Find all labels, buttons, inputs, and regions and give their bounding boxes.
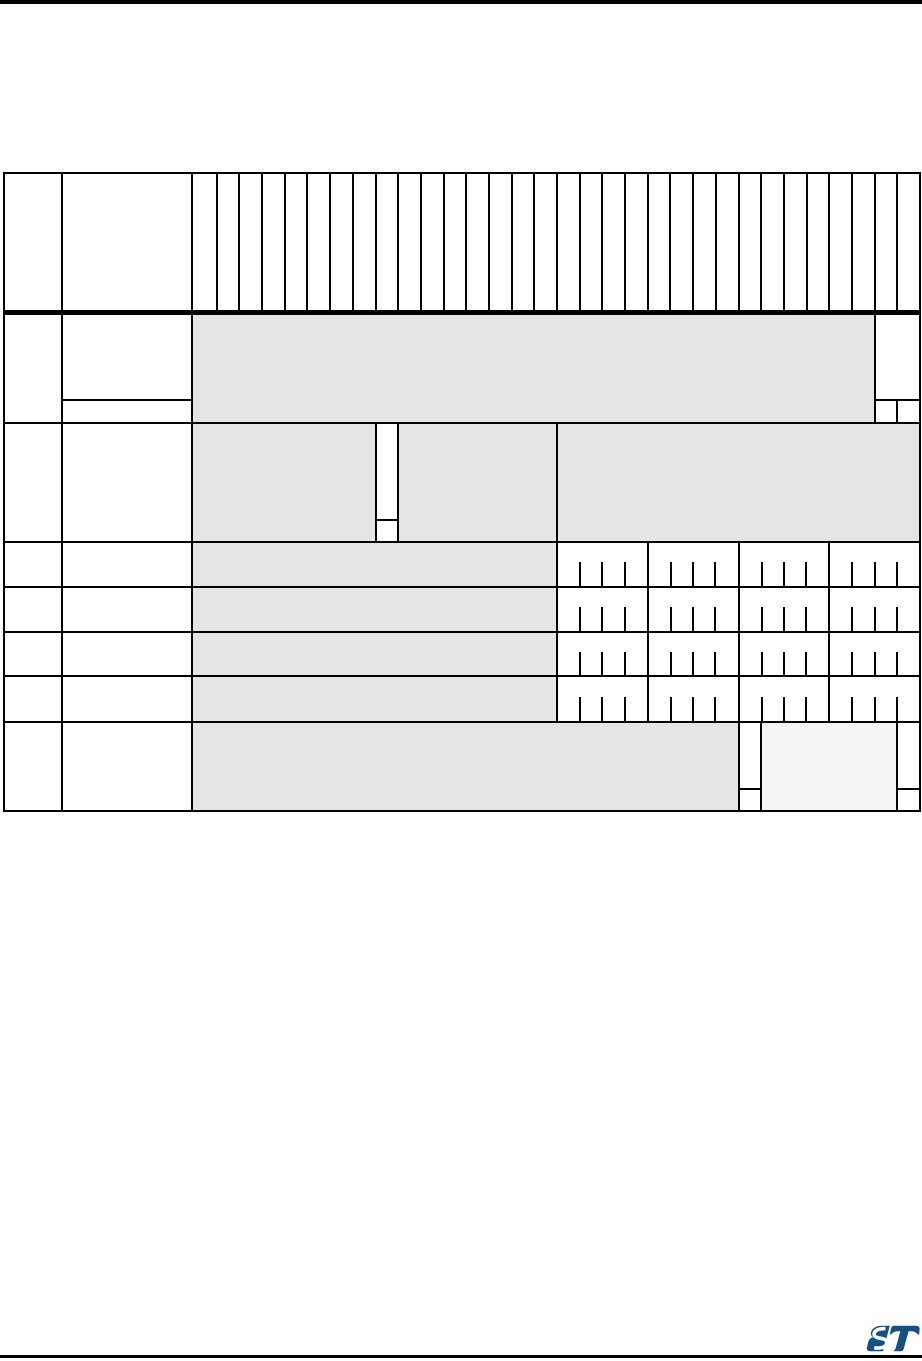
bit-cells [193, 424, 919, 541]
reserved-cell-light [760, 723, 896, 810]
register-name-cell [63, 633, 193, 675]
offset-column-divider [61, 174, 63, 810]
reserved-cell [193, 633, 556, 675]
field-cell [896, 723, 919, 810]
register-name-cell [63, 315, 193, 422]
bit-separator-tick [783, 697, 785, 721]
table-row [5, 588, 919, 633]
header-bit-cell [329, 174, 352, 310]
field-cell [647, 677, 738, 721]
header-bit-cell [851, 174, 874, 310]
header-bit-cell [488, 174, 511, 310]
header-bit-cell [306, 174, 329, 310]
table-row [5, 677, 919, 723]
field-cell [828, 677, 919, 721]
bit-separator-tick [670, 652, 672, 675]
register-column-divider [191, 174, 193, 810]
reset-value-divider [740, 788, 761, 790]
header-bit-cell [715, 174, 738, 310]
reserved-cell [193, 588, 556, 631]
header-bit-cell [647, 174, 670, 310]
reserved-cell [193, 677, 556, 721]
reserved-cell [397, 424, 556, 541]
reset-value-divider [377, 519, 398, 521]
bit-separator-tick [874, 652, 876, 675]
register-name-cell [63, 588, 193, 631]
bit-separator-tick [692, 607, 694, 631]
header-bit-cell [533, 174, 556, 310]
field-cell [828, 633, 919, 675]
field-cell [556, 677, 647, 721]
table-row [5, 543, 919, 588]
field-cell [738, 543, 829, 586]
bit-separator-tick [714, 697, 716, 721]
header-bit-cell [284, 174, 307, 310]
bit-separator-tick [783, 607, 785, 631]
reset-value-divider [898, 788, 919, 790]
header-bit-cell [624, 174, 647, 310]
bit-separator-tick [874, 562, 876, 586]
bit-separator-tick [714, 562, 716, 586]
header-bit-cell [692, 174, 715, 310]
header-bit-cell [556, 174, 579, 310]
table-header-row [5, 174, 919, 310]
bit-separator-tick [692, 652, 694, 675]
header-bit-cell [465, 174, 488, 310]
field-cell [828, 588, 919, 631]
bit-separator-tick [692, 697, 694, 721]
bit-separator-tick [896, 697, 898, 721]
bit-separator-tick [851, 607, 853, 631]
bit-separator-tick [805, 607, 807, 631]
register-name-cell [63, 677, 193, 721]
reserved-cell [193, 315, 874, 422]
reserved-cell [193, 543, 556, 586]
bit-separator-tick [579, 652, 581, 675]
header-bit-cell [806, 174, 829, 310]
field-cell [556, 543, 647, 586]
table-row [5, 315, 919, 424]
bit-separator-tick [579, 697, 581, 721]
bit-separator-tick [805, 652, 807, 675]
register-name-cell [63, 424, 193, 541]
bit-separator-tick [851, 697, 853, 721]
bit-separator-tick [579, 562, 581, 586]
bit-separator-tick [874, 607, 876, 631]
header-bit-cell [760, 174, 783, 310]
table-row [5, 424, 919, 543]
bit-separator-tick [896, 652, 898, 675]
bit-separator-tick [783, 562, 785, 586]
bit-separator-tick [601, 562, 603, 586]
reserved-cell [193, 723, 738, 810]
header-bit-cell [352, 174, 375, 310]
header-bit-cell [261, 174, 284, 310]
field-cell [647, 588, 738, 631]
header-bit-cell [601, 174, 624, 310]
register-map-table [3, 172, 921, 812]
bit-separator-tick [783, 652, 785, 675]
bit-separator-tick [624, 652, 626, 675]
bit-separator-tick [692, 562, 694, 586]
field-cell [647, 633, 738, 675]
bit-cells [193, 315, 919, 422]
bit-separator-tick [601, 652, 603, 675]
bit-separator-tick [714, 652, 716, 675]
bit-cells [193, 588, 919, 631]
field-cell [375, 424, 398, 541]
bit-cells [193, 543, 919, 586]
register-name-cell [63, 543, 193, 586]
bit-separator-tick [761, 562, 763, 586]
bit-separator-tick [874, 697, 876, 721]
header-bit-cell [896, 174, 919, 310]
bit-separator-tick [579, 607, 581, 631]
bit-separator-tick [851, 652, 853, 675]
field-cell [647, 543, 738, 586]
bit-separator-tick [851, 562, 853, 586]
header-bit-cell [193, 174, 216, 310]
bit-separator-tick [896, 562, 898, 586]
header-bit-cell [669, 174, 692, 310]
header-bit-cell [579, 174, 602, 310]
header-bit-columns [193, 174, 919, 310]
bit-separator-tick [896, 607, 898, 631]
footer-rule [0, 1355, 922, 1358]
bit-cells [193, 677, 919, 721]
bit-separator-tick [670, 697, 672, 721]
header-rule [0, 0, 922, 4]
field-cell [556, 588, 647, 631]
bit-separator-tick [601, 607, 603, 631]
bit-cells [193, 633, 919, 675]
bit-separator-tick [761, 607, 763, 631]
bit-separator-tick [714, 607, 716, 631]
header-bit-cell [375, 174, 398, 310]
header-bit-cell [783, 174, 806, 310]
bit-separator-tick [805, 562, 807, 586]
field-cell [738, 588, 829, 631]
logo-t-shape [890, 1326, 920, 1351]
bit-divider [896, 399, 898, 422]
bit-separator-tick [624, 562, 626, 586]
field-cell [738, 723, 761, 810]
bit-separator-tick [601, 697, 603, 721]
reserved-cell [193, 424, 375, 541]
header-bit-cell [828, 174, 851, 310]
table-row [5, 633, 919, 677]
field-cell [556, 633, 647, 675]
header-bit-cell [874, 174, 897, 310]
register-name-cell [63, 723, 193, 810]
field-cell [738, 677, 829, 721]
header-bit-cell [511, 174, 534, 310]
reserved-cell [556, 424, 919, 541]
bit-separator-tick [624, 607, 626, 631]
bit-separator-tick [761, 652, 763, 675]
reset-value-divider [63, 399, 193, 401]
header-bit-cell [397, 174, 420, 310]
header-bit-cell [420, 174, 443, 310]
bit-separator-tick [670, 607, 672, 631]
header-separator-bar [5, 310, 919, 315]
header-bit-cell [443, 174, 466, 310]
bit-separator-tick [624, 697, 626, 721]
bit-cells [193, 723, 919, 810]
field-cell [874, 315, 919, 422]
bit-separator-tick [670, 562, 672, 586]
bit-separator-tick [805, 697, 807, 721]
field-cell [828, 543, 919, 586]
field-cell [738, 633, 829, 675]
header-bit-cell [238, 174, 261, 310]
table-row [5, 723, 919, 810]
document-page [0, 0, 922, 1361]
header-bit-cell [738, 174, 761, 310]
st-microelectronics-logo [866, 1325, 920, 1352]
header-bit-cell [216, 174, 239, 310]
bit-separator-tick [761, 697, 763, 721]
